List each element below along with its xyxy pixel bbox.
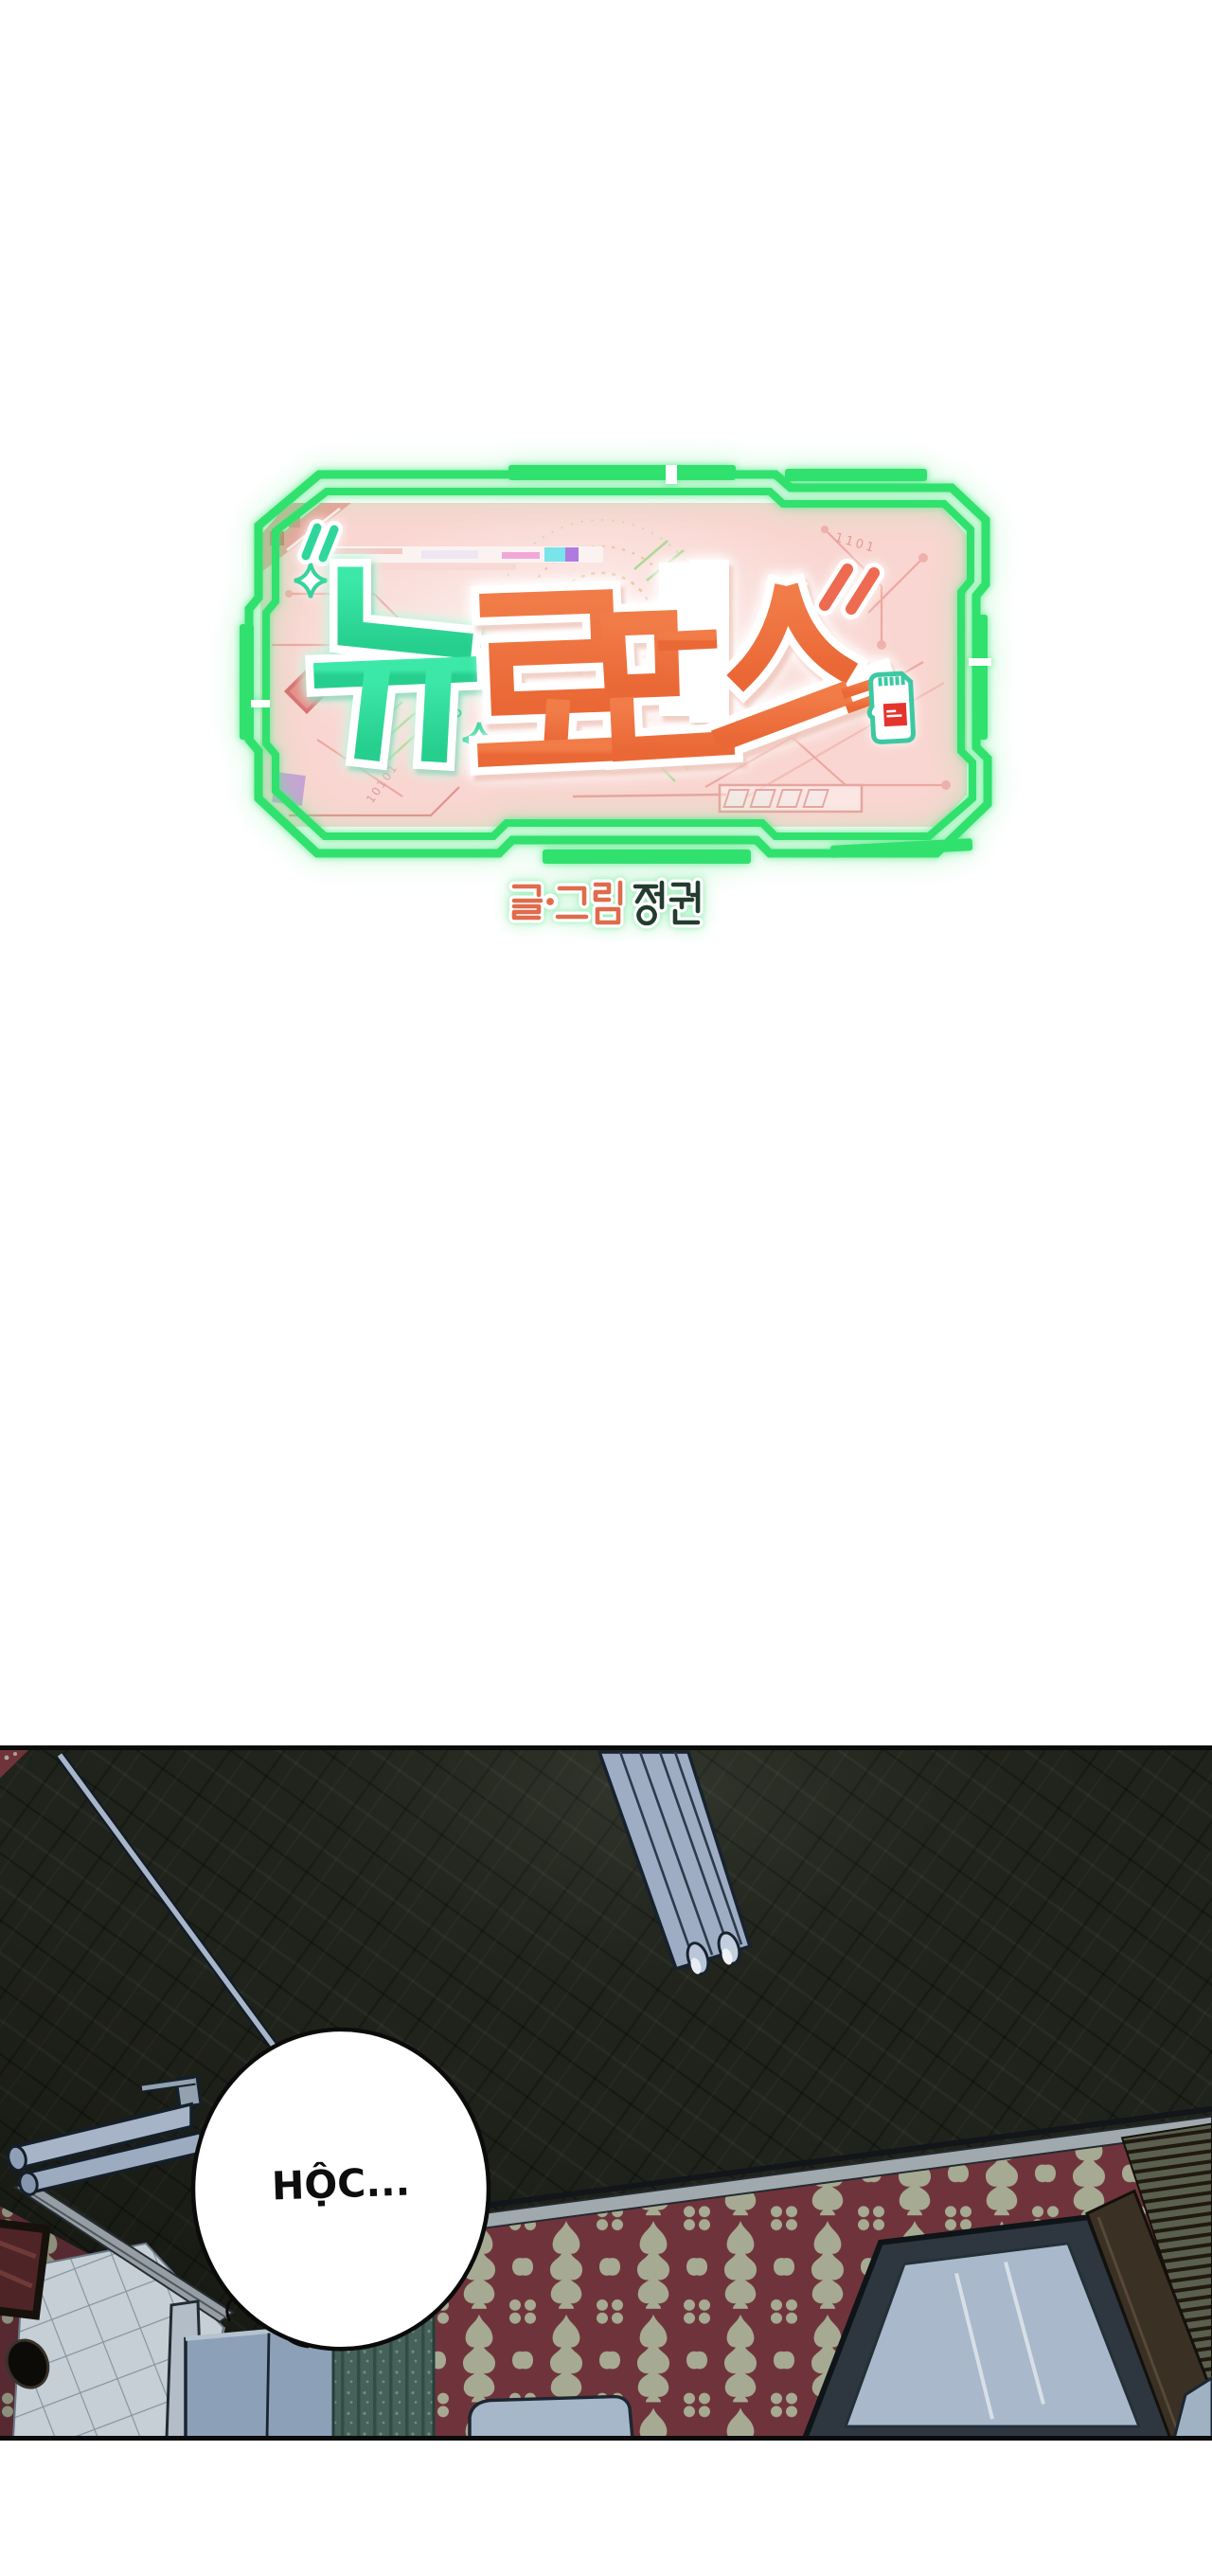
series-title-logo <box>224 465 1003 866</box>
pillow <box>470 2397 633 2436</box>
comic-panel: HỘC... <box>0 1745 1212 2441</box>
webtoon-page: 뉴로맨스 <box>0 0 1212 2576</box>
quote-marks-orange-icon <box>825 569 874 609</box>
room-scene <box>0 1750 1212 2436</box>
title-card: 뉴로맨스 <box>224 465 1003 866</box>
microsd-card-icon <box>867 673 914 742</box>
credit-line: 글·그림 정권 <box>507 875 705 930</box>
quote-marks-green-icon <box>306 528 334 558</box>
speech-bubble-text: HỘC... <box>226 2157 455 2210</box>
title-syllable-new <box>327 580 464 749</box>
credit-lettering <box>507 875 705 930</box>
